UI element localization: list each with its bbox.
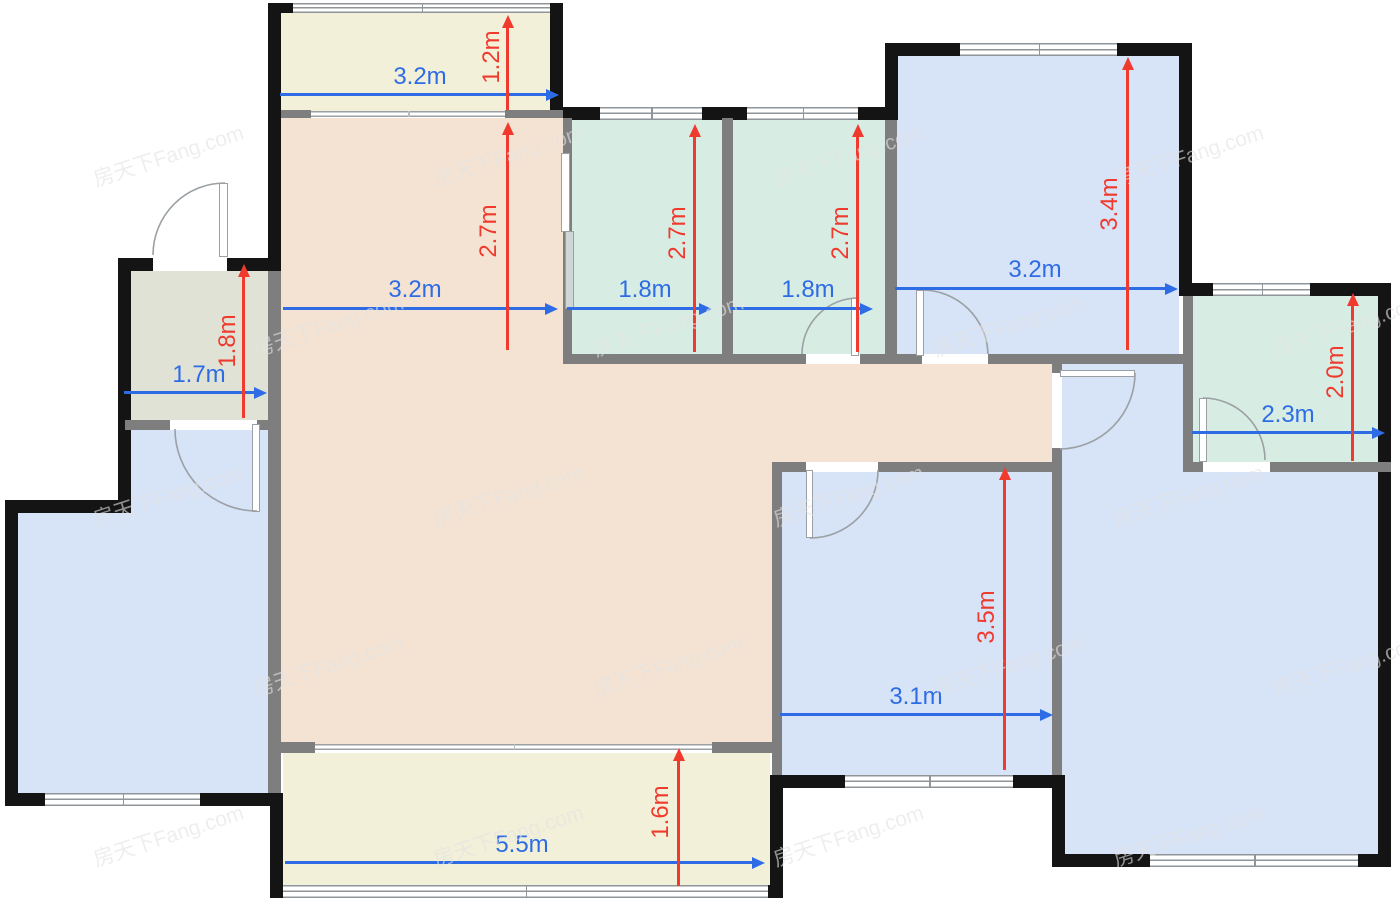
door-opening (153, 258, 227, 271)
wall-segment (505, 110, 563, 118)
dim-label: 3.2m (388, 276, 441, 304)
wall-segment (268, 113, 281, 271)
wall-segment (563, 354, 1192, 364)
door-opening (170, 420, 257, 430)
wall-segment (550, 3, 563, 118)
watermark-text: 房天下Fang.com (89, 117, 247, 194)
wall-segment (270, 793, 283, 898)
room-left-large (131, 430, 268, 793)
door-leaf (916, 290, 924, 356)
dim-arrow-teal-right-depth (856, 137, 859, 352)
wall-segment (1179, 43, 1192, 296)
wall-segment (5, 500, 131, 513)
room-right-large (1062, 364, 1183, 855)
wall-segment (268, 3, 281, 115)
dim-arrow-bath-depth (1351, 306, 1354, 461)
dim-label: 1.2m (478, 30, 506, 83)
window (845, 775, 1013, 788)
dim-label: 1.8m (618, 276, 671, 304)
door-opening (806, 462, 878, 472)
wall-segment (770, 775, 783, 898)
dim-label: 5.5m (495, 831, 548, 859)
dim-label: 1.8m (214, 314, 242, 367)
room-teal-right (733, 120, 885, 354)
sliding-door-track (315, 744, 712, 750)
wall-segment (1378, 283, 1391, 867)
dim-label: 1.8m (781, 276, 834, 304)
door-leaf (806, 470, 813, 538)
wall-segment (712, 742, 772, 753)
wall-segment (1183, 296, 1193, 462)
dim-arrow-utility-width (124, 391, 254, 394)
dim-label: 1.6m (647, 785, 675, 838)
window (747, 107, 858, 120)
floor-plan: 3.2m 3.2m 1.8m 1.8m 3.2m 1.7m 2.3m 3.1m … (0, 0, 1400, 901)
room-bedroom-top-right (897, 56, 1179, 354)
dim-arrow-bedroom-bottom-width (780, 713, 1040, 716)
dim-arrow-balcony-top-depth (506, 28, 509, 110)
wall-segment (5, 500, 18, 806)
door-leaf (252, 424, 260, 512)
sliding-door-track (311, 111, 505, 117)
room-utility-left (131, 271, 268, 420)
door-leaf (219, 183, 228, 257)
window (600, 107, 702, 120)
wall-segment (722, 118, 733, 354)
door-opening (1052, 373, 1062, 448)
door-opening (922, 354, 988, 364)
wall-segment (118, 258, 131, 513)
room-left-large-lower (18, 513, 131, 793)
dim-label: 2.3m (1261, 401, 1314, 429)
dim-label: 2.7m (475, 204, 503, 257)
window (283, 885, 768, 898)
dim-label: 3.2m (393, 63, 446, 91)
room-balcony-bottom (283, 753, 770, 885)
wall-segment (268, 271, 281, 793)
room-living-area-lower (563, 364, 772, 745)
dim-arrow-bath-width (1192, 431, 1372, 434)
window (1150, 854, 1358, 867)
window (45, 793, 200, 806)
dim-arrow-utility-depth (242, 277, 245, 418)
wall-segment (885, 120, 897, 356)
room-right-large-lower (1183, 472, 1378, 855)
dim-arrow-bedroom-top-right-depth (1126, 70, 1129, 350)
window (1213, 283, 1310, 296)
dim-arrow-balcony-bottom-width (285, 861, 752, 864)
dim-arrow-bedroom-top-right-width (895, 287, 1165, 290)
dim-arrow-bedroom-bottom-depth (1003, 480, 1006, 770)
dim-arrow-balcony-bottom-depth (677, 761, 680, 886)
dim-arrow-teal-left-width (567, 307, 699, 310)
dim-arrow-teal-right-width (730, 307, 860, 310)
dim-label: 3.2m (1008, 256, 1061, 284)
dim-label: 3.4m (1096, 177, 1124, 230)
room-bedroom-bottom-middle (782, 472, 1052, 775)
dim-label: 2.0m (1322, 345, 1350, 398)
dim-arrow-teal-left-depth (693, 137, 696, 352)
door-leaf (1060, 370, 1135, 377)
room-hallway (772, 364, 1052, 462)
dim-label: 2.7m (664, 206, 692, 259)
sliding-panel (565, 231, 574, 309)
window (960, 43, 1117, 56)
wall-segment (772, 462, 782, 775)
dim-label: 3.1m (889, 683, 942, 711)
door-opening (1203, 462, 1270, 472)
watermark-text: 房天下Fang.com (769, 797, 927, 874)
room-living-area (281, 118, 563, 745)
watermark-text: 房天下Fang.com (89, 797, 247, 874)
room-teal-left (572, 120, 722, 354)
door-arc (153, 183, 225, 255)
door-leaf (1199, 398, 1207, 462)
wall-segment (281, 110, 311, 118)
dim-label: 2.7m (827, 206, 855, 259)
dim-label: 3.5m (973, 590, 1001, 643)
wall-segment (270, 742, 315, 753)
dim-arrow-living-depth (506, 135, 509, 350)
wall-segment (1052, 775, 1065, 867)
sliding-panel (561, 153, 570, 232)
window (293, 3, 550, 13)
